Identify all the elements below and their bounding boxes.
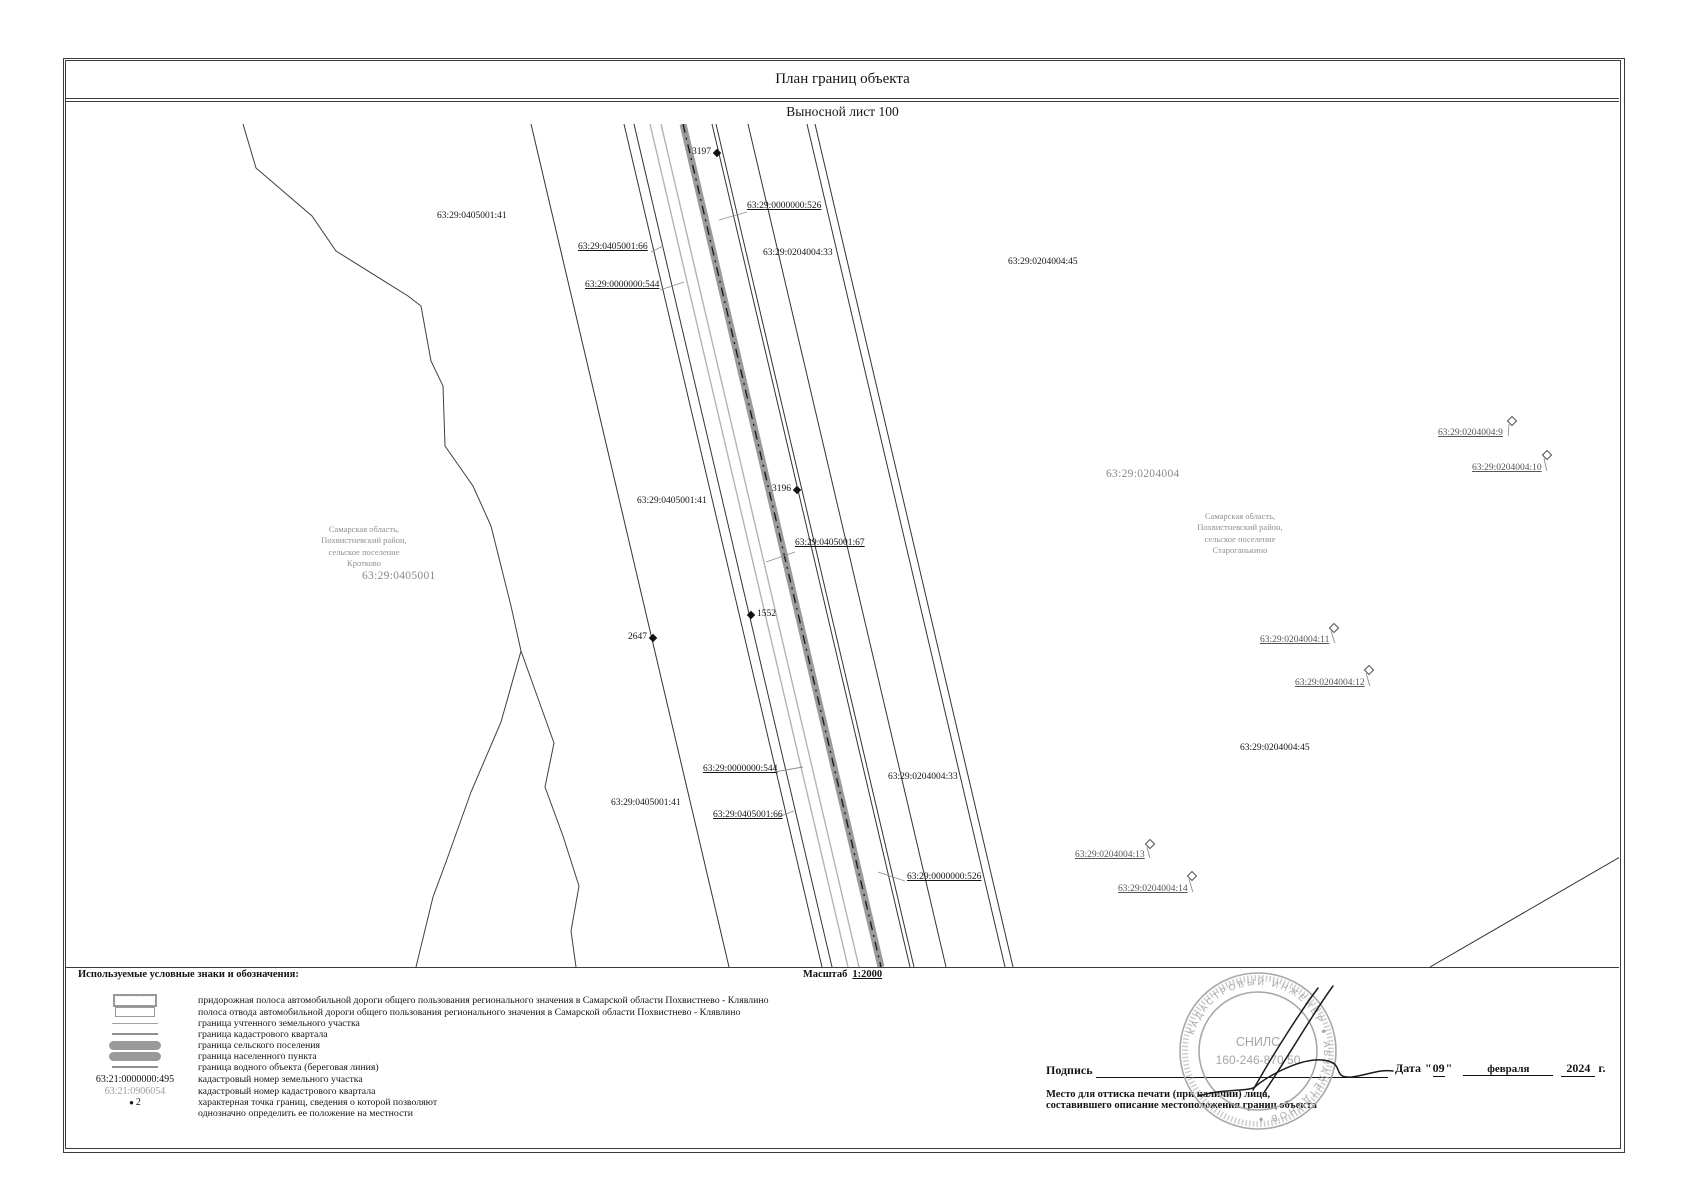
- cadastral-engineer-stamp: КАДАСТРОВЫЙ ИНЖЕНЕР ♦ АБЗАЛЕТДИНОВ ♦ СНИ…: [1150, 950, 1410, 1155]
- map-area: [66, 124, 1619, 968]
- close-quote: ": [1446, 1061, 1453, 1076]
- scale-value: 1:2000: [852, 969, 882, 980]
- map-markers-layer: [649, 149, 1552, 892]
- sheet-subtitle: Выносной лист 100: [66, 101, 1619, 123]
- label-leader-line: [1508, 424, 1509, 436]
- scale-label: Масштаб: [803, 969, 847, 980]
- date-year: 2024: [1561, 1061, 1595, 1077]
- handwritten-signature: [1198, 986, 1393, 1096]
- boundary-point-marker: [747, 611, 755, 619]
- label-leader-line: [660, 282, 684, 290]
- settlement-boundary-lines: [243, 124, 579, 967]
- boundary-point-marker: [649, 634, 657, 642]
- cadastral-plan-page: План границ объекта Выносной лист 100: [0, 0, 1697, 1200]
- date-row: Дата "09" февраля 2024 г.: [1395, 1061, 1605, 1077]
- year-suffix: г.: [1598, 1061, 1605, 1076]
- open-quote: ": [1425, 1061, 1432, 1076]
- stamp-snils-label: СНИЛС: [1236, 1035, 1280, 1049]
- date-month: февраля: [1463, 1063, 1553, 1076]
- label-leader-line: [774, 767, 803, 772]
- page-title: План границ объекта: [66, 61, 1619, 98]
- date-day: 09: [1433, 1061, 1445, 1077]
- signature-label: Подпись: [1046, 1063, 1093, 1078]
- boundary-point-marker: [793, 486, 801, 494]
- label-leader-line: [1544, 458, 1547, 471]
- parcel-boundary-lines: [531, 124, 1619, 967]
- map-linework: [66, 124, 1619, 967]
